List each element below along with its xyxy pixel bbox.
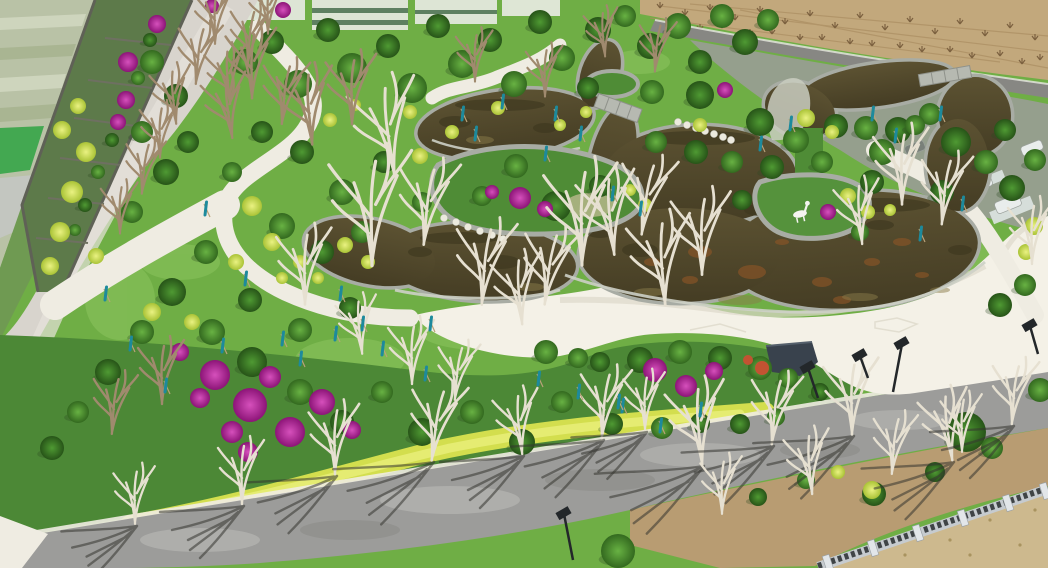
bush-yellow [580, 106, 592, 118]
tree-green [757, 9, 779, 31]
water-patch [948, 245, 972, 255]
bougainvillea [509, 187, 531, 209]
bush-yellow [61, 181, 83, 203]
water-patch [866, 220, 894, 230]
tree-support-post [130, 337, 132, 350]
stepping-stone [727, 136, 734, 143]
bush-yellow [337, 237, 353, 253]
bush-yellow [184, 314, 200, 330]
bush-yellow [70, 98, 86, 114]
tree-support-post [382, 342, 384, 355]
tree-support-post [362, 317, 364, 330]
tree-green [783, 127, 809, 153]
tree-green [811, 151, 833, 173]
tree-green [131, 71, 145, 85]
stepping-stone [719, 133, 726, 140]
tree-green [590, 352, 610, 372]
tree-green [153, 159, 179, 185]
tree-support-post [282, 332, 284, 345]
bush-yellow [88, 248, 104, 264]
tree-support-post [205, 202, 207, 215]
tree-green [67, 401, 89, 423]
tree-green [999, 175, 1025, 201]
sand-speck [968, 553, 971, 556]
tree-support-post [962, 197, 964, 210]
tree-support-post [640, 202, 642, 215]
sand-speck [903, 553, 906, 556]
water-patch [915, 272, 929, 278]
tree-green [551, 391, 573, 413]
tree-green [732, 29, 758, 55]
tree-green [730, 414, 750, 434]
bush-yellow [41, 257, 59, 275]
stepping-stone [464, 223, 471, 230]
stepping-stone [674, 118, 681, 125]
bougainvillea [820, 204, 836, 220]
bougainvillea [275, 2, 291, 18]
tree-green [749, 488, 767, 506]
tree-green [238, 288, 262, 312]
sand-speck [1033, 508, 1036, 511]
tree-support-post [300, 352, 302, 365]
stepping-stone [683, 121, 690, 128]
tree-green [177, 131, 199, 153]
bougainvillea [148, 15, 166, 33]
tree-green [143, 33, 157, 47]
tree-support-post [165, 379, 167, 392]
tree-green [69, 224, 81, 236]
tree-support-post [425, 367, 427, 380]
bush-yellow [50, 222, 70, 242]
tree-green [988, 293, 1012, 317]
water-patch [775, 239, 789, 245]
stepping-stone [476, 227, 483, 234]
bougainvillea [717, 82, 733, 98]
bush-yellow [863, 481, 881, 499]
bougainvillea [705, 362, 723, 380]
water-patch [408, 247, 432, 257]
water-patch [893, 238, 911, 246]
tree-green [686, 81, 714, 109]
tree-support-post [430, 317, 432, 330]
bush-yellow [143, 303, 161, 321]
tree-support-post [618, 395, 620, 408]
bougainvillea [309, 389, 335, 415]
tree-green [140, 50, 164, 74]
bougainvillea [675, 375, 697, 397]
tree-green [941, 127, 971, 157]
tree-support-post [612, 187, 614, 200]
bush-yellow [831, 465, 845, 479]
tree-green [721, 151, 743, 173]
tree-green [316, 18, 340, 42]
water-patch [533, 123, 557, 133]
tree-green [732, 190, 752, 210]
bush-orange [755, 361, 769, 375]
sand-speck [1018, 543, 1021, 546]
tree-green [684, 140, 708, 164]
tree-green [222, 162, 242, 182]
tree-green [528, 10, 552, 34]
bush-orange [743, 355, 753, 365]
tree-support-post [462, 107, 464, 120]
tree-green [640, 80, 664, 104]
bougainvillea [221, 421, 243, 443]
bougainvillea [485, 185, 499, 199]
bougainvillea [275, 417, 305, 447]
tree-support-post [545, 147, 547, 160]
tree-green [577, 77, 599, 99]
tree-support-post [580, 127, 582, 140]
tree-green [158, 278, 186, 306]
tree-green [288, 318, 312, 342]
bougainvillea [110, 114, 126, 130]
tree-support-post [940, 107, 942, 120]
tree-support-post [920, 227, 922, 240]
tree-green [645, 131, 667, 153]
stepping-stone [440, 214, 447, 221]
tree-green [105, 133, 119, 147]
tree-green [194, 240, 218, 264]
bush-yellow [797, 109, 815, 127]
tree-green [994, 119, 1016, 141]
tree-support-post [222, 339, 224, 352]
tree-support-post [335, 327, 337, 340]
tree-support-post [760, 137, 762, 150]
bush-yellow [445, 125, 459, 139]
bougainvillea [200, 360, 230, 390]
tree-green [668, 340, 692, 364]
bush-yellow [76, 142, 96, 162]
tree-support-post [895, 129, 897, 142]
bush-yellow [228, 254, 244, 270]
bougainvillea [537, 201, 553, 217]
water-patch [466, 136, 494, 144]
tree-green [905, 115, 925, 135]
tree-green [568, 348, 588, 368]
stepping-stone [452, 218, 459, 225]
bush-yellow [693, 118, 707, 132]
water-patch [682, 276, 698, 284]
bush-yellow [825, 125, 839, 139]
sand-speck [948, 538, 951, 541]
bougainvillea [259, 366, 281, 388]
water-patch [738, 265, 766, 279]
tree-support-post [538, 372, 540, 385]
tree-green [974, 150, 998, 174]
tree-green [504, 154, 528, 178]
water-patch [842, 293, 878, 301]
tree-green [460, 400, 484, 424]
tree-green [1024, 149, 1046, 171]
tree-green [1014, 274, 1036, 296]
tree-green [688, 50, 712, 74]
tree-support-post [245, 272, 247, 285]
aerial-park-photo [0, 0, 1048, 568]
bougainvillea [118, 52, 138, 72]
bush-yellow [242, 196, 262, 216]
bush-yellow [276, 272, 288, 284]
water-patch [718, 295, 762, 305]
bougainvillea [117, 91, 135, 109]
bush-yellow [884, 204, 896, 216]
tree-green [40, 436, 64, 460]
tree-green [251, 121, 273, 143]
bougainvillea [190, 388, 210, 408]
tree-green [854, 116, 878, 140]
tree-support-post [502, 95, 504, 108]
tree-green [710, 4, 734, 28]
tree-green [534, 340, 558, 364]
tree-support-post [660, 419, 662, 432]
bush-yellow [53, 121, 71, 139]
bush-yellow [312, 272, 324, 284]
tree-support-post [340, 287, 342, 300]
water-patch [864, 258, 880, 266]
tree-green [91, 165, 105, 179]
tree-green [78, 198, 92, 212]
tree-support-post [578, 385, 580, 398]
tree-green [371, 381, 393, 403]
tree-green [501, 71, 527, 97]
tree-green [426, 14, 450, 38]
water-patch [812, 277, 832, 287]
tree-support-post [700, 403, 702, 416]
tree-green [601, 534, 635, 568]
tree-green [290, 140, 314, 164]
stepping-stone [710, 130, 717, 137]
tree-support-post [872, 107, 874, 120]
tree-green [746, 108, 774, 136]
tree-support-post [555, 107, 557, 120]
sand-speck [988, 518, 991, 521]
tree-green [376, 34, 400, 58]
bougainvillea [233, 388, 267, 422]
bush-yellow [403, 105, 417, 119]
tree-green [760, 155, 784, 179]
bush-yellow [323, 113, 337, 127]
tree-green [130, 320, 154, 344]
tree-support-post [475, 127, 477, 140]
tree-support-post [105, 287, 107, 300]
tree-support-post [790, 117, 792, 130]
bush-yellow [412, 148, 428, 164]
